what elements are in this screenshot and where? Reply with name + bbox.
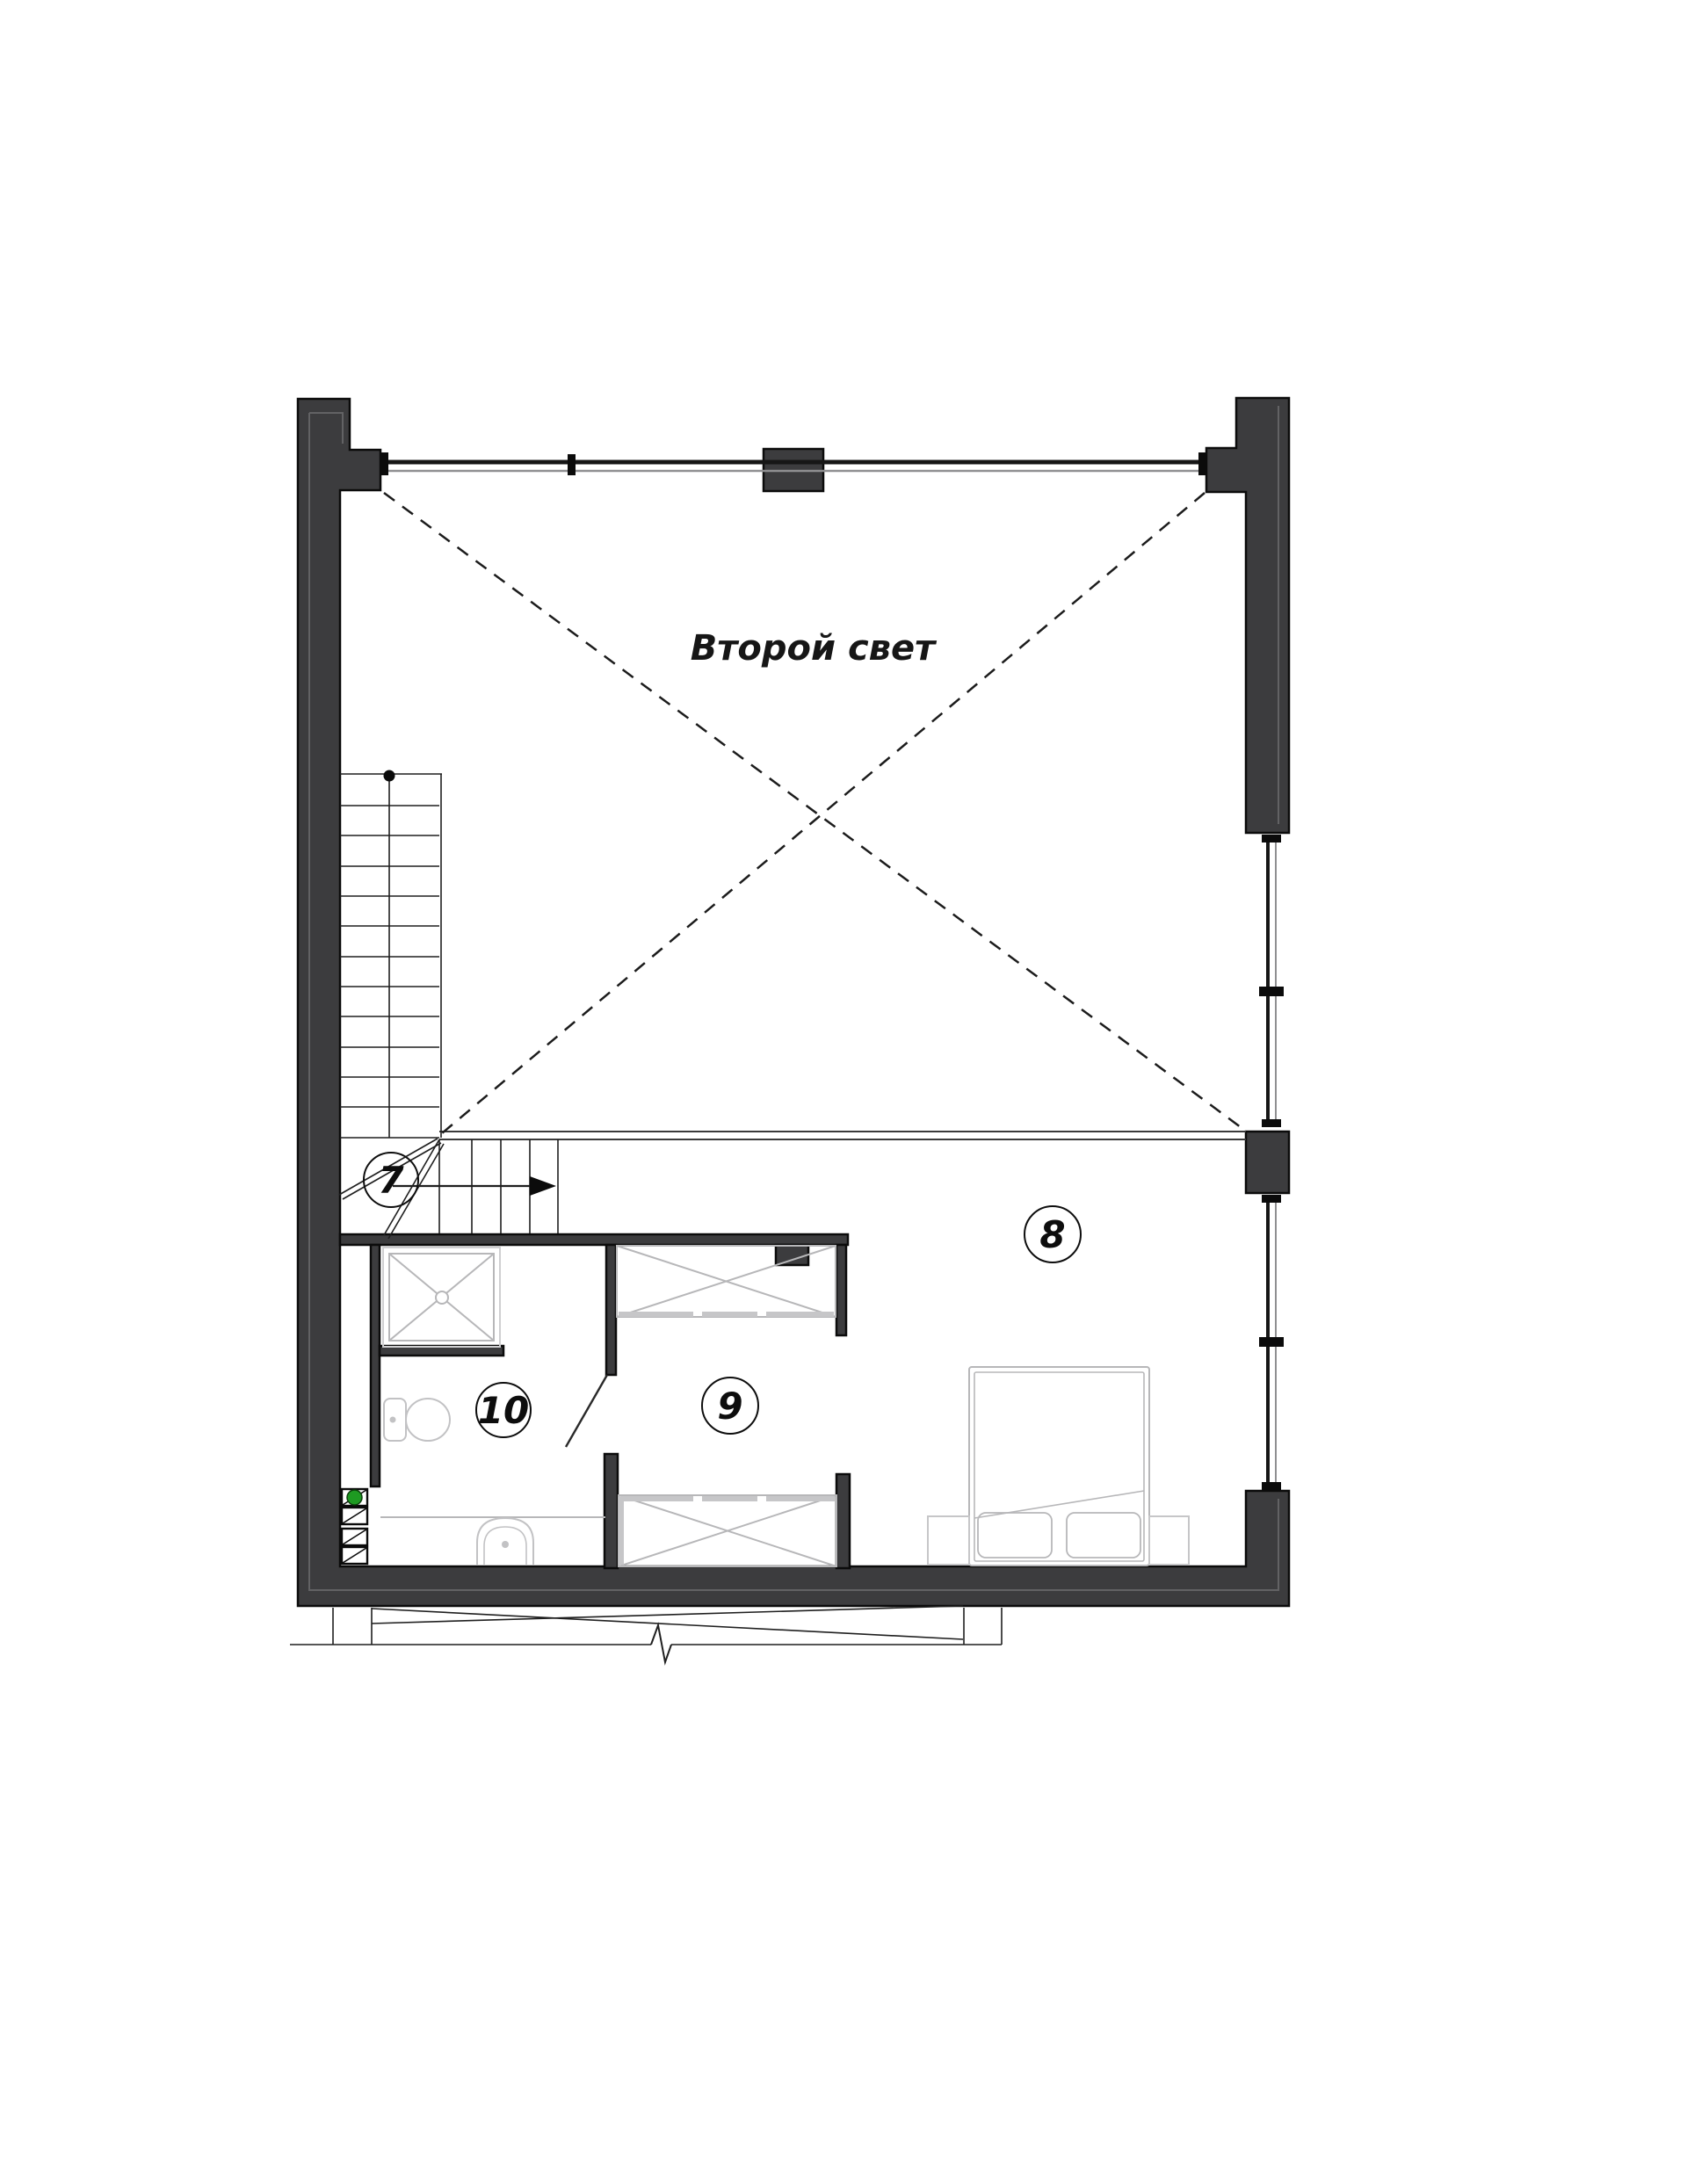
slope-line xyxy=(372,1609,963,1639)
sink-drain xyxy=(502,1541,509,1548)
bathroom-door-leaf xyxy=(566,1375,607,1447)
window-cap xyxy=(1262,1195,1281,1203)
slope-line xyxy=(372,1606,963,1624)
window-mullion xyxy=(1259,1337,1284,1347)
toilet-bowl xyxy=(406,1399,450,1441)
bathroom-wall-upper xyxy=(606,1245,616,1375)
room-tag-10: 10 xyxy=(476,1383,531,1437)
room-number-8: 8 xyxy=(1039,1213,1065,1256)
windows xyxy=(380,452,1284,1490)
closet-wall-lower xyxy=(836,1474,850,1568)
void-cross-lines xyxy=(384,493,1244,1133)
window-cap xyxy=(1262,835,1281,843)
window-mullion xyxy=(1259,987,1284,996)
sink xyxy=(380,1517,605,1566)
shower-drain xyxy=(436,1291,448,1304)
bed-pillow xyxy=(978,1513,1052,1558)
right-window-upper xyxy=(1259,835,1284,1127)
foundation-pier xyxy=(333,1608,372,1645)
floor-plan-page: Второй свет 7 8 9 10 xyxy=(0,0,1687,2184)
stair-wall-tab xyxy=(776,1245,808,1265)
room-number-9: 9 xyxy=(717,1385,742,1428)
mezzanine-railing xyxy=(439,1132,1246,1139)
room-number-10: 10 xyxy=(478,1389,529,1432)
wall-inner-lines xyxy=(309,406,1278,1590)
floor-plan-drawing: Второй свет 7 8 9 10 xyxy=(0,0,1687,2184)
foundation-pier xyxy=(964,1608,1002,1645)
room-number-7: 7 xyxy=(378,1159,404,1202)
window-mullion xyxy=(568,454,576,475)
ventilation-shaft xyxy=(342,1489,367,1564)
shower xyxy=(383,1247,500,1347)
right-window-lower xyxy=(1259,1195,1284,1490)
nightstand xyxy=(1149,1516,1189,1565)
right-wall-pier xyxy=(1246,1132,1289,1193)
window-cap xyxy=(1262,1119,1281,1127)
bed-blanket-fold xyxy=(974,1491,1144,1518)
vent-point xyxy=(347,1490,362,1505)
stair-start-dot xyxy=(384,770,395,782)
window-cap xyxy=(1198,452,1206,475)
bathroom-wall-lower xyxy=(605,1454,618,1568)
closet-wall-upper xyxy=(836,1245,846,1335)
walls xyxy=(298,398,1289,1606)
break-mark xyxy=(651,1625,671,1662)
bed-pillow xyxy=(1067,1513,1140,1558)
ground-lines xyxy=(290,1606,1002,1662)
wardrobe-lower xyxy=(619,1495,836,1566)
stair-wall xyxy=(340,1234,848,1245)
toilet-button xyxy=(390,1417,396,1423)
room-tag-8: 8 xyxy=(1025,1206,1081,1262)
wardrobe-upper xyxy=(617,1246,836,1317)
room-tag-7: 7 xyxy=(364,1153,418,1207)
toilet xyxy=(384,1399,450,1441)
shaft-wall xyxy=(371,1245,380,1486)
nightstand xyxy=(928,1516,969,1565)
bed xyxy=(928,1367,1189,1566)
room-tag-9: 9 xyxy=(702,1378,758,1434)
outer-wall-left-bottom xyxy=(298,399,1289,1606)
window-cap xyxy=(380,452,388,475)
void-label: Второй свет xyxy=(691,628,938,669)
outer-wall-top-right xyxy=(1206,398,1289,833)
stairs xyxy=(339,770,558,1240)
window-cap xyxy=(1262,1482,1281,1490)
